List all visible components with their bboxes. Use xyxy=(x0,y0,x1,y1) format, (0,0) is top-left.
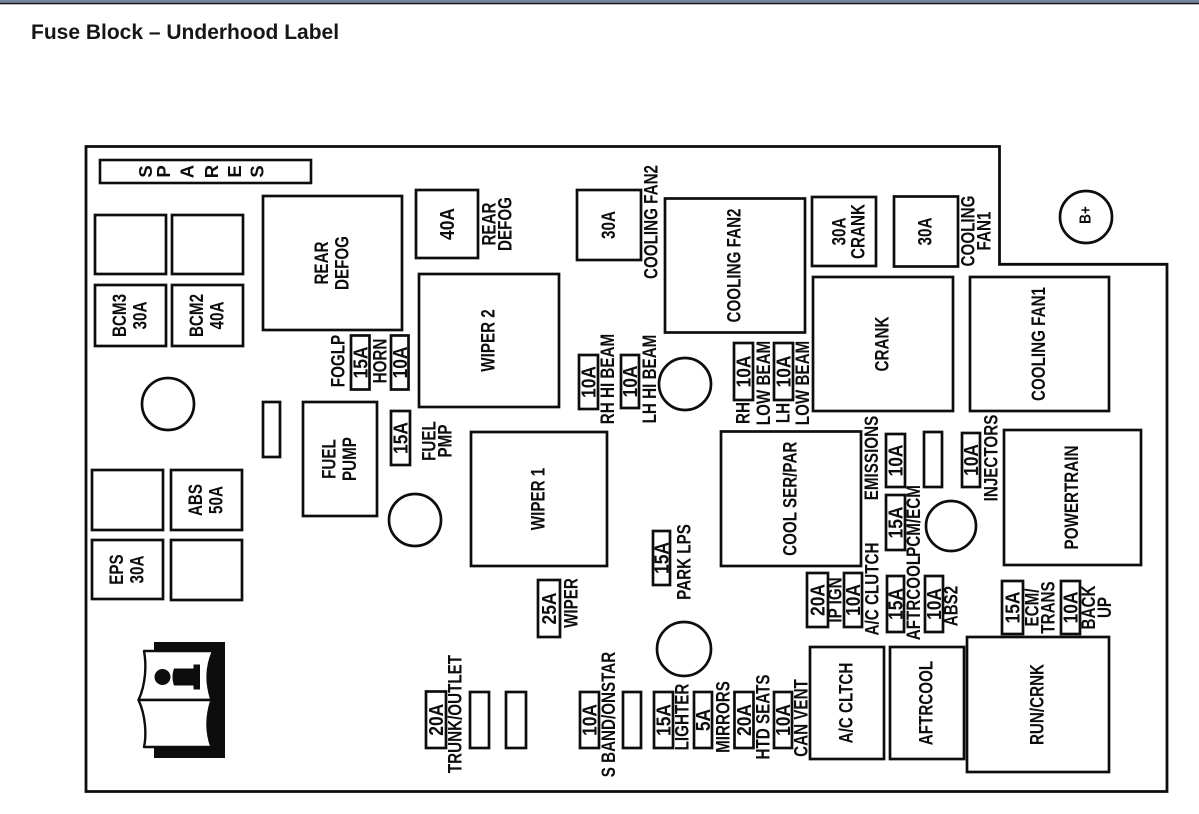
svg-text:LOW BEAM: LOW BEAM xyxy=(793,341,814,425)
svg-text:15A: 15A xyxy=(1002,591,1025,623)
svg-text:10A: 10A xyxy=(733,355,756,387)
svg-text:30A: 30A xyxy=(830,217,851,245)
svg-text:R: R xyxy=(201,165,222,178)
svg-text:UP: UP xyxy=(1095,597,1116,618)
svg-text:B+: B+ xyxy=(1078,206,1095,224)
svg-text:TRUNK/OUTLET: TRUNK/OUTLET xyxy=(446,655,467,774)
svg-text:DEFOG: DEFOG xyxy=(496,197,517,251)
svg-text:LIGHTER: LIGHTER xyxy=(673,683,694,750)
svg-text:TRANS: TRANS xyxy=(1039,581,1060,633)
svg-text:AFTRCOOL: AFTRCOOL xyxy=(917,660,938,745)
svg-text:10A: 10A xyxy=(619,365,642,397)
svg-text:PUMP: PUMP xyxy=(340,437,361,481)
svg-text:A: A xyxy=(177,165,198,178)
svg-text:A/C CLUTCH: A/C CLUTCH xyxy=(863,543,884,636)
svg-text:30A: 30A xyxy=(916,217,937,245)
svg-text:50A: 50A xyxy=(206,486,227,514)
svg-text:FAN1: FAN1 xyxy=(975,211,996,250)
svg-text:40A: 40A xyxy=(207,301,228,329)
svg-text:15A: 15A xyxy=(390,422,413,454)
svg-text:30A: 30A xyxy=(127,555,148,583)
svg-text:LH HI BEAM: LH HI BEAM xyxy=(640,335,661,424)
svg-text:S: S xyxy=(247,165,268,177)
svg-text:CAN VENT: CAN VENT xyxy=(792,679,813,757)
svg-text:40A: 40A xyxy=(436,208,459,240)
svg-text:PCM/ECM: PCM/ECM xyxy=(904,485,925,557)
svg-text:Fuse Block – Underhood Label: Fuse Block – Underhood Label xyxy=(31,21,339,44)
svg-text:COOL SER/PAR: COOL SER/PAR xyxy=(781,441,802,556)
svg-text:CRANK: CRANK xyxy=(849,204,870,259)
svg-text:BCM3: BCM3 xyxy=(110,294,131,337)
svg-text:S BAND/ONSTAR: S BAND/ONSTAR xyxy=(599,652,620,778)
svg-text:10A: 10A xyxy=(885,444,908,476)
svg-text:25A: 25A xyxy=(538,592,561,624)
svg-text:HORN: HORN xyxy=(371,339,392,384)
svg-text:30A: 30A xyxy=(599,211,620,239)
svg-text:COOLING FAN2: COOLING FAN2 xyxy=(725,209,746,323)
svg-text:30A: 30A xyxy=(130,301,151,329)
svg-text:RUN/CRNK: RUN/CRNK xyxy=(1028,664,1049,745)
svg-text:10A: 10A xyxy=(960,444,983,476)
svg-text:E: E xyxy=(224,165,245,177)
svg-text:RH HI BEAM: RH HI BEAM xyxy=(598,334,619,424)
svg-text:COOLING FAN2: COOLING FAN2 xyxy=(642,165,663,279)
svg-text:FUEL: FUEL xyxy=(319,439,340,479)
svg-text:ABS2: ABS2 xyxy=(942,586,963,627)
svg-text:REAR: REAR xyxy=(312,241,333,284)
svg-text:WIPER 2: WIPER 2 xyxy=(479,309,500,372)
svg-text:BCM2: BCM2 xyxy=(187,294,208,337)
svg-text:COOLING FAN1: COOLING FAN1 xyxy=(1029,287,1050,401)
svg-text:CRANK: CRANK xyxy=(873,316,894,371)
svg-text:AFTRCOOL: AFTRCOOL xyxy=(904,555,925,640)
svg-text:ABS: ABS xyxy=(186,484,207,516)
svg-text:LH: LH xyxy=(774,403,795,423)
svg-text:MIRRORS: MIRRORS xyxy=(714,681,735,753)
svg-text:A/C CLTCH: A/C CLTCH xyxy=(837,663,858,744)
svg-text:DEFOG: DEFOG xyxy=(332,236,353,290)
svg-text:10A: 10A xyxy=(389,346,412,378)
svg-text:INJECTORS: INJECTORS xyxy=(982,415,1003,502)
svg-text:5A: 5A xyxy=(692,709,715,731)
svg-text:PMP: PMP xyxy=(436,424,457,457)
svg-text:WIPER 1: WIPER 1 xyxy=(529,467,550,530)
svg-text:POWERTRAIN: POWERTRAIN xyxy=(1062,446,1083,550)
svg-text:15A: 15A xyxy=(349,346,372,378)
svg-text:EMISSIONS: EMISSIONS xyxy=(862,416,883,501)
svg-text:EPS: EPS xyxy=(107,554,128,584)
svg-text:P: P xyxy=(153,165,174,177)
svg-text:WIPER: WIPER xyxy=(562,578,583,628)
svg-text:FOGLP: FOGLP xyxy=(329,335,350,388)
svg-text:RH: RH xyxy=(734,402,755,424)
svg-text:15A: 15A xyxy=(651,542,674,574)
svg-text:PARK LPS: PARK LPS xyxy=(675,524,696,600)
